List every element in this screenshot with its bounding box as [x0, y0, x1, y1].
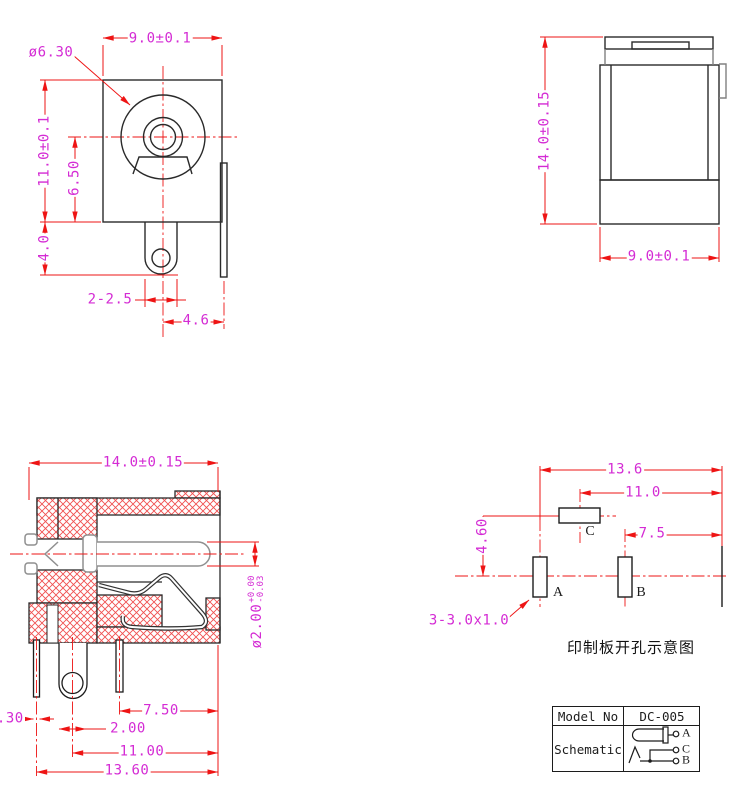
pcb-slot-note: 3-3.0x1.0 [428, 614, 510, 629]
terminal-c-circle [673, 747, 679, 753]
dim-pcb-offset-c: 4.60 [476, 517, 491, 555]
dim-front-barrel-dia: ø6.30 [28, 46, 75, 61]
schematic-terminal-a: A [682, 726, 691, 741]
dim-pcb-overall: 13.6 [606, 463, 644, 478]
dim-section-terminal-thickness: 0.30 [0, 712, 25, 727]
dim-front-height: 11.0±0.1 [38, 114, 53, 187]
schematic-terminal-b: B [682, 753, 690, 768]
dim-section-pitch-b: 7.50 [142, 704, 180, 719]
drawing-canvas [0, 0, 750, 797]
pin-dia-value: ø2.00 [250, 604, 265, 649]
dim-pcb-pitch-b: 7.5 [638, 527, 667, 542]
dim-side-height: 14.0±0.15 [538, 90, 553, 172]
dim-pcb-pitch-c: 11.0 [624, 486, 662, 501]
pcb-hole-a [533, 557, 547, 597]
pcb-hole-label-a: A [553, 585, 563, 601]
dim-front-width: 9.0±0.1 [128, 32, 193, 47]
dim-front-lug-length: 4.0 [38, 234, 53, 263]
dim-side-width: 9.0±0.1 [627, 250, 692, 265]
dim-section-length: 14.0±0.15 [102, 456, 184, 471]
pin-tol-minus: -0.03 [257, 576, 266, 603]
dim-section-overall: 13.60 [104, 764, 151, 779]
model-no-label: Model No [553, 707, 623, 725]
dim-section-pin-dia: ø2.00+0.00-0.03 [248, 575, 266, 650]
engineering-drawing-sheet: ø6.30 9.0±0.1 11.0±0.1 6.50 4.0 2-2.5 4.… [0, 0, 750, 797]
pcb-hole-label-c: C [585, 524, 594, 540]
pcb-hole-label-b: B [636, 585, 645, 601]
terminal-b-circle [673, 758, 679, 764]
model-no-value: DC-005 [623, 707, 701, 725]
dim-section-pitch-a: 11.00 [119, 745, 166, 760]
dim-front-lug-width: 2-2.5 [87, 293, 134, 308]
dim-section-lug-width: 2.00 [109, 722, 147, 737]
schematic-label: Schematic [553, 725, 623, 773]
pcb-caption: 印制板开孔示意图 [567, 637, 695, 658]
terminal-a-circle [673, 731, 679, 737]
dim-front-pin-offset: 4.6 [182, 314, 211, 329]
side-view [540, 37, 726, 262]
pcb-hole-b [618, 557, 632, 597]
dim-front-center-height: 6.50 [68, 159, 83, 197]
pcb-hole-view [455, 466, 727, 620]
pcb-hole-c [559, 508, 600, 523]
